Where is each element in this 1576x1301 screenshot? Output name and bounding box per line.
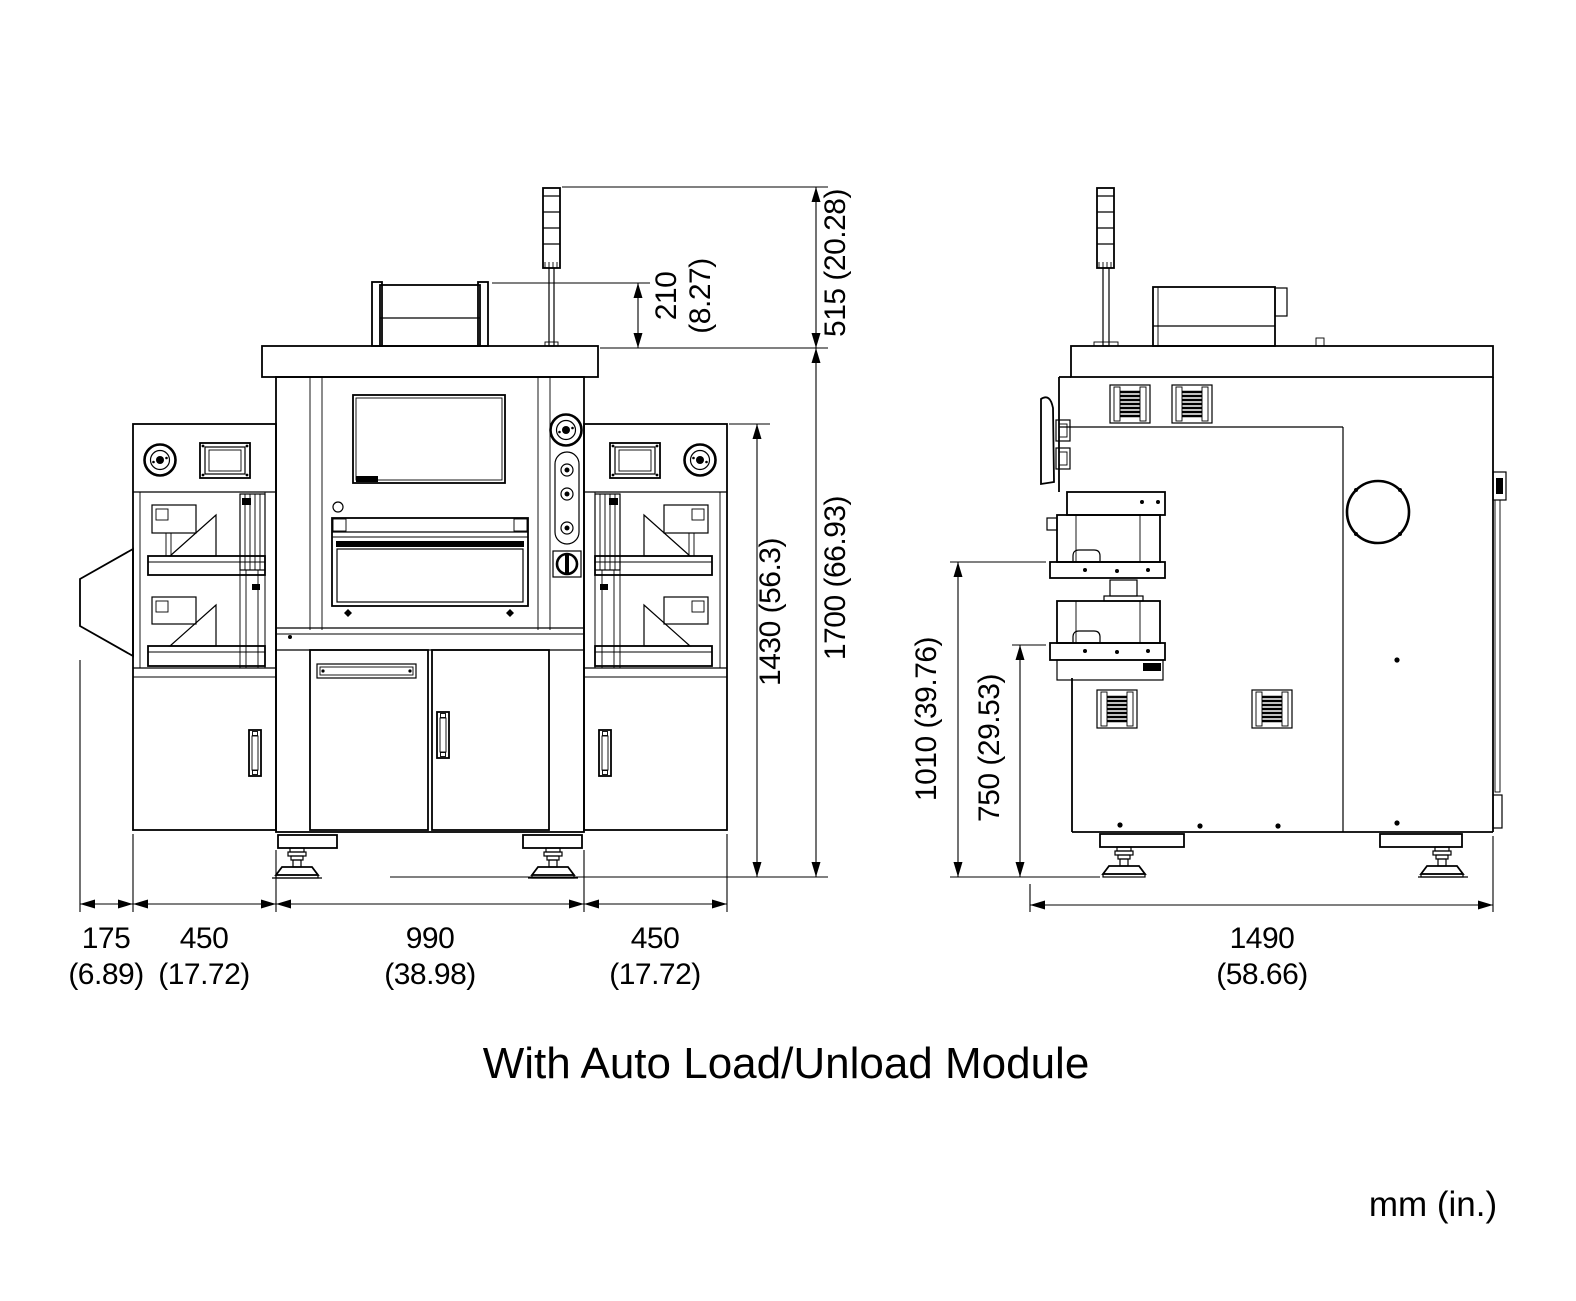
dimension-drawing: 210 (8.27) 515 (20.28) 1430 (56.3) 1700 … <box>0 0 1576 1301</box>
rotary-switch <box>553 551 581 577</box>
dim-width-4-in: (17.72) <box>609 958 701 991</box>
control-column <box>551 415 582 578</box>
dimensions-side: 1010 (39.76) 750 (29.53) 1490 (58.66) <box>910 562 1493 991</box>
screw <box>288 635 292 639</box>
dim-width-2-mm: 450 <box>180 922 229 955</box>
screen-badge <box>356 476 378 482</box>
dim-width-4-mm: 450 <box>631 922 680 955</box>
dim-roof-module-height-in: (8.27) <box>684 258 717 333</box>
roof-monitor-side <box>1153 287 1287 346</box>
side-chute <box>80 549 133 656</box>
dim-width-1-mm: 175 <box>82 922 131 955</box>
dim-width-1-in: (6.89) <box>68 958 143 991</box>
drawing-caption: With Auto Load/Unload Module <box>483 1039 1090 1088</box>
right-loader-wing <box>584 424 727 830</box>
door-vent-slot <box>317 664 416 678</box>
side-view <box>1041 188 1506 877</box>
door-handle <box>437 712 449 758</box>
dim-width-3-mm: 990 <box>406 922 455 955</box>
left-loader-wing <box>133 424 276 830</box>
touch-screen <box>353 395 505 483</box>
side-feet <box>1100 834 1468 877</box>
panel-buttons <box>561 464 573 534</box>
dim-upper-stage-height: 1010 (39.76) <box>910 637 943 801</box>
front-view <box>80 188 727 878</box>
dim-signal-tower-height: 515 (20.28) <box>819 189 852 337</box>
vent-louver <box>1110 385 1150 423</box>
dim-overall-height: 1700 (66.93) <box>819 496 852 660</box>
roof-slab-side <box>1071 346 1493 377</box>
roof-slab <box>262 346 598 377</box>
power-button <box>333 502 343 512</box>
dim-depth-mm: 1490 <box>1230 922 1295 955</box>
signal-tower <box>543 188 560 346</box>
front-feet <box>272 835 582 878</box>
frame-columns <box>310 377 550 630</box>
roof-tab <box>1316 338 1324 346</box>
technical-drawing-page: 210 (8.27) 515 (20.28) 1430 (56.3) 1700 … <box>0 0 1576 1301</box>
estop-button <box>551 415 582 446</box>
units-note: mm (in.) <box>1369 1185 1497 1224</box>
vent-louver <box>1252 690 1292 728</box>
dim-frame-height: 1430 (56.3) <box>754 538 787 686</box>
roof-monitor-module <box>372 282 488 346</box>
dim-width-3-in: (38.98) <box>384 958 476 991</box>
signal-tower-side <box>1094 188 1118 346</box>
dim-roof-module-height-mm: 210 <box>650 272 683 321</box>
cabinet-left-door <box>310 650 428 830</box>
dim-width-2-in: (17.72) <box>158 958 250 991</box>
dim-depth-in: (58.66) <box>1216 958 1308 991</box>
rear-hinge-hardware <box>1493 472 1506 828</box>
load-unload-stage <box>1047 492 1165 680</box>
fan-port <box>1347 481 1409 543</box>
curved-guard <box>1041 397 1054 484</box>
screws <box>1117 657 1399 828</box>
side-body <box>1059 377 1493 832</box>
vent-louver <box>1097 690 1137 728</box>
dimensions-front: 210 (8.27) 515 (20.28) 1430 (56.3) 1700 … <box>68 187 852 991</box>
dim-lower-stage-height: 750 (29.53) <box>973 674 1006 822</box>
vent-louver <box>1172 385 1212 423</box>
panel-screws <box>344 609 514 617</box>
extension-lines <box>80 660 727 912</box>
work-opening <box>332 518 528 606</box>
